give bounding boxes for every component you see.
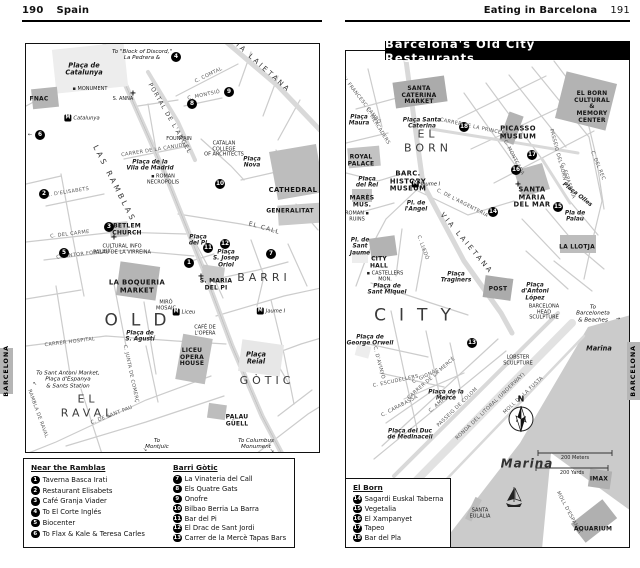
legend-item: 4To El Corte Inglés (31, 507, 165, 518)
restaurant-marker: 8 (187, 99, 197, 109)
map-label: GENERALITAT (266, 209, 314, 216)
restaurant-marker: 15 (553, 202, 563, 212)
legend-item-number: 6 (31, 530, 40, 539)
map-label: CATHEDRAL (269, 187, 318, 195)
map-label: Plaça S. Josep Oriol (213, 249, 239, 268)
map-label: Plaça de Sant Miquel (368, 284, 407, 297)
legend-item-label: Els Quatre Gats (185, 485, 238, 493)
map-label: To Montjuïc (145, 438, 169, 451)
restaurant-marker: 4 (171, 52, 181, 62)
left-page-number: 190 (22, 5, 43, 16)
legend-item-label: To El Corte Inglés (43, 508, 102, 516)
legend-item: 8Els Quatre Gats (173, 484, 287, 494)
map-label: ▪ MONUMENT (73, 87, 108, 93)
legend-item-number: 11 (173, 514, 182, 523)
old-city-map-west: To "Block of Discord," La Pedrera &Plaça… (25, 43, 320, 453)
legend-item-number: 9 (173, 495, 182, 504)
legend-item-label: La Vinateria del Call (185, 475, 253, 483)
right-header-rule (345, 20, 630, 22)
map-label: LA BOQUERIA MARKET (109, 279, 165, 294)
right-page-number: 191 (610, 5, 630, 16)
legend-item-number: 17 (353, 524, 362, 533)
church-cross-icon: + (198, 273, 205, 282)
map-label: ▪ ROMAN NECROPOLIS (147, 174, 179, 185)
restaurant-marker: 1 (184, 258, 194, 268)
left-side-tab: BARCELONA (0, 348, 13, 394)
legend-item-number: 14 (353, 495, 362, 504)
map-label: 200 Meters (561, 456, 589, 462)
map-label: Plaça Reial (246, 352, 266, 367)
map-label: Pla de Palau (565, 211, 585, 224)
map-label: Plaça de Catalunya (65, 63, 102, 78)
legend-item-number: 12 (173, 524, 182, 533)
map-label: Marina (586, 345, 612, 352)
map-title-banner: Barcelona's Old City Restaurants (385, 41, 630, 60)
map-label: IMAX (590, 477, 608, 484)
map-label: LA LLOTJA (559, 245, 595, 252)
legend-heading: Near the Ramblas (31, 463, 165, 472)
map-label: AQUARIUM (574, 527, 612, 534)
map-label: CITY HALL (370, 256, 388, 269)
restaurant-marker: 12 (220, 239, 230, 249)
map-label: Pl. de l'Angel (405, 201, 427, 214)
legend-item: 13Carrer de la Mercè Tapas Bars (173, 533, 287, 543)
legend-item: 12El Drac de Sant Jordi (173, 523, 287, 533)
map-label: S. MARIA DEL PI (200, 278, 232, 291)
metro-station: MJaume I (257, 308, 285, 315)
legend-item: 9Onofre (173, 494, 287, 504)
restaurant-marker: 9 (224, 87, 234, 97)
legend-item: 10Bilbao Berria La Barra (173, 504, 287, 514)
map-label: CATALAN COLLEGE OF ARCHITECTS (204, 142, 244, 159)
map-label: BARCELONA HEAD SCULPTURE (529, 305, 559, 322)
legend-item-label: To Flax & Kale & Teresa Carles (43, 530, 145, 538)
map-label: ↖ (33, 382, 37, 388)
legend-item-label: Restaurant Elisabets (43, 487, 113, 495)
map-label: Plaça d'Antoni López (521, 282, 548, 301)
right-page-header: Eating in Barcelona 191 (345, 5, 630, 16)
legend-item-label: Vegetalia (365, 505, 397, 513)
legend-item-number: 16 (353, 514, 362, 523)
legend-column: El Born14Sagardi Euskal Taberna15Vegetal… (353, 483, 444, 543)
church-cross-icon: + (515, 181, 522, 190)
map-label: ROMAN ▪ RUINS (345, 211, 369, 222)
restaurant-legend-west: Near the Ramblas1Taverna Basca Irati2Res… (23, 458, 295, 548)
map-label: POST (489, 287, 508, 294)
legend-heading: El Born (353, 483, 444, 492)
map-label: N (518, 396, 525, 405)
guidebook-spread: { "left_page": { "page_number": "190", "… (0, 0, 640, 568)
map-label: ← (28, 133, 32, 139)
map-label: To "Block of Discord," La Pedrera & (112, 49, 172, 62)
left-page-header: 190 Spain (22, 5, 89, 16)
restaurant-marker: 6 (35, 130, 45, 140)
legend-item-number: 8 (173, 485, 182, 494)
restaurant-marker: 10 (215, 179, 225, 189)
legend-item: 2Restaurant Elisabets (31, 485, 165, 496)
map-label: Marina (501, 457, 554, 470)
map-label: EL BORN CULTURAL & MEMORY CENTER (574, 91, 611, 125)
map-label: ROYAL PALACE (348, 154, 375, 167)
legend-item-label: El Xampanyet (365, 515, 412, 523)
map-label: 200 Yards (560, 471, 584, 477)
map-label: SANTA CATERINA MARKET (402, 86, 437, 106)
restaurant-marker: 3 (104, 222, 114, 232)
left-header-rule (22, 20, 322, 22)
district-label: GÒTIC (240, 374, 295, 388)
metro-name: Jaume I (266, 308, 285, 314)
legend-item: 14Sagardi Euskal Taberna (353, 495, 444, 505)
legend-item-number: 1 (31, 476, 40, 485)
map-label: Pl. de Sant Jaume (350, 237, 370, 256)
metro-icon: M (412, 181, 419, 188)
metro-name: Jaume I (421, 181, 440, 187)
legend-column: Near the Ramblas1Taverna Basca Irati2Res… (31, 463, 165, 543)
map-label: To Columbus Monument (238, 438, 274, 451)
map-label: Plaça Traginers (441, 272, 472, 285)
map-label: → (616, 317, 620, 323)
restaurant-marker: 14 (488, 207, 498, 217)
map-label: FNAC (30, 97, 49, 104)
right-side-tab: BARCELONA (627, 342, 640, 400)
legend-item: 11Bar del Pi (173, 514, 287, 524)
church-cross-icon: + (130, 90, 137, 99)
district-label: CITY (374, 306, 464, 325)
district-label: EL RAVAL (61, 393, 116, 422)
legend-item-label: Taverna Basca Irati (43, 476, 108, 484)
map-title: Barcelona's Old City Restaurants (385, 37, 630, 65)
right-page-title: Eating in Barcelona (484, 5, 598, 16)
legend-item: 1Taverna Basca Irati (31, 475, 165, 486)
legend-item: 15Vegetalia (353, 504, 444, 514)
legend-item-number: 18 (353, 534, 362, 543)
restaurant-marker: 5 (59, 248, 69, 258)
map-label: ↘ (143, 448, 147, 453)
map-label: ↘ (270, 449, 274, 453)
legend-item-number: 2 (31, 486, 40, 495)
legend-item: 17Tapeo (353, 524, 444, 534)
legend-item: 7La Vinateria del Call (173, 475, 287, 485)
legend-item-number: 5 (31, 519, 40, 528)
legend-item-label: Café Granja Viader (43, 497, 107, 505)
restaurant-marker: 7 (266, 249, 276, 259)
restaurant-marker: 17 (527, 150, 537, 160)
district-label: EL BORN (404, 128, 452, 157)
map-label: SANTA EULÀLIA (470, 508, 491, 519)
map-label: PALAU GÜELL (226, 414, 249, 427)
legend-item: 3Café Granja Viader (31, 496, 165, 507)
legend-item-label: Onofre (185, 495, 208, 503)
legend-item: 18Bar del Pla (353, 533, 444, 543)
legend-item-label: Sagardi Euskal Taberna (365, 495, 444, 503)
restaurant-legend-east: El Born14Sagardi Euskal Taberna15Vegetal… (345, 478, 451, 548)
legend-column: Barri Gòtic7La Vinateria del Call8Els Qu… (173, 463, 287, 543)
right-side-tab-label: BARCELONA (630, 345, 637, 397)
metro-station: MLiceu (173, 309, 196, 316)
metro-station: MCatalunya (64, 115, 99, 122)
legend-item-number: 4 (31, 508, 40, 517)
district-label: OLD (105, 311, 180, 330)
map-label: ▪ CASTELLERS MON. (367, 271, 404, 282)
restaurant-marker: 18 (459, 122, 469, 132)
metro-icon: M (173, 309, 180, 316)
metro-icon: M (64, 115, 71, 122)
legend-item-label: Bar del Pla (365, 534, 401, 542)
map-label: Plaça del Rei (356, 177, 378, 190)
legend-item-label: Bar del Pi (185, 515, 217, 523)
map-label: To Barceloneta & Beaches (575, 305, 611, 324)
legend-item-number: 3 (31, 497, 40, 506)
map-label: Plaça de George Orwell (347, 335, 394, 348)
map-label: Plaça del Duc de Medinaceli (387, 429, 432, 442)
church-cross-icon: + (111, 234, 118, 243)
left-page-chapter: Spain (56, 5, 89, 16)
restaurant-marker: 16 (511, 165, 521, 175)
map-label: Plaça de S. Agustí (125, 331, 154, 344)
metro-icon: M (257, 308, 264, 315)
legend-item: 16El Xampanyet (353, 514, 444, 524)
map-label: LICEU OPERA HOUSE (180, 348, 204, 368)
map-label: LOBSTER SCULPTURE (503, 355, 532, 366)
left-side-tab-label: BARCELONA (3, 345, 10, 397)
legend-item-label: El Drac de Sant Jordi (185, 524, 255, 532)
legend-item-number: 15 (353, 505, 362, 514)
map-label: PICASSO MUSEUM (500, 125, 537, 140)
map-label: SANTA MARIA DEL MAR (513, 187, 550, 210)
legend-item: 6To Flax & Kale & Teresa Carles (31, 528, 165, 539)
legend-item-number: 7 (173, 475, 182, 484)
map-label: Plaça de la Vila de Madrid (126, 160, 173, 173)
restaurant-marker: 2 (39, 189, 49, 199)
map-label: To Sant Antoni Market, Plaça d'Espanya &… (36, 371, 100, 390)
street-network-west (26, 44, 320, 453)
metro-station: MJaume I (412, 181, 440, 188)
map-label: CULTURAL INFO PALAU DE LA VIRREINA (93, 244, 151, 255)
legend-item-number: 10 (173, 504, 182, 513)
legend-item-label: Bilbao Berria La Barra (185, 505, 259, 513)
metro-name: Catalunya (73, 115, 99, 121)
district-label: BARRI (237, 271, 291, 285)
restaurant-marker: 11 (203, 243, 213, 253)
legend-item-label: Carrer de la Mercè Tapas Bars (185, 534, 287, 542)
map-label: CAFÉ DE L'OPERA (194, 325, 216, 336)
street-network-east (346, 51, 630, 548)
legend-item-label: Biocenter (43, 519, 76, 527)
legend-item: 5Biocenter (31, 518, 165, 529)
restaurant-marker: 13 (467, 338, 477, 348)
legend-item-label: Tapeo (365, 524, 385, 532)
legend-heading: Barri Gòtic (173, 463, 287, 472)
metro-name: Liceu (182, 309, 196, 315)
legend-item-number: 13 (173, 534, 182, 543)
old-city-map-east: SANTA CATERINA MARKETPlaça MauraPlaça Sa… (345, 50, 630, 548)
map-label: FOUNTAIN (166, 137, 192, 143)
map-label: MARÈS MUS. (350, 195, 375, 208)
map-label: Plaça Nova (243, 157, 261, 170)
